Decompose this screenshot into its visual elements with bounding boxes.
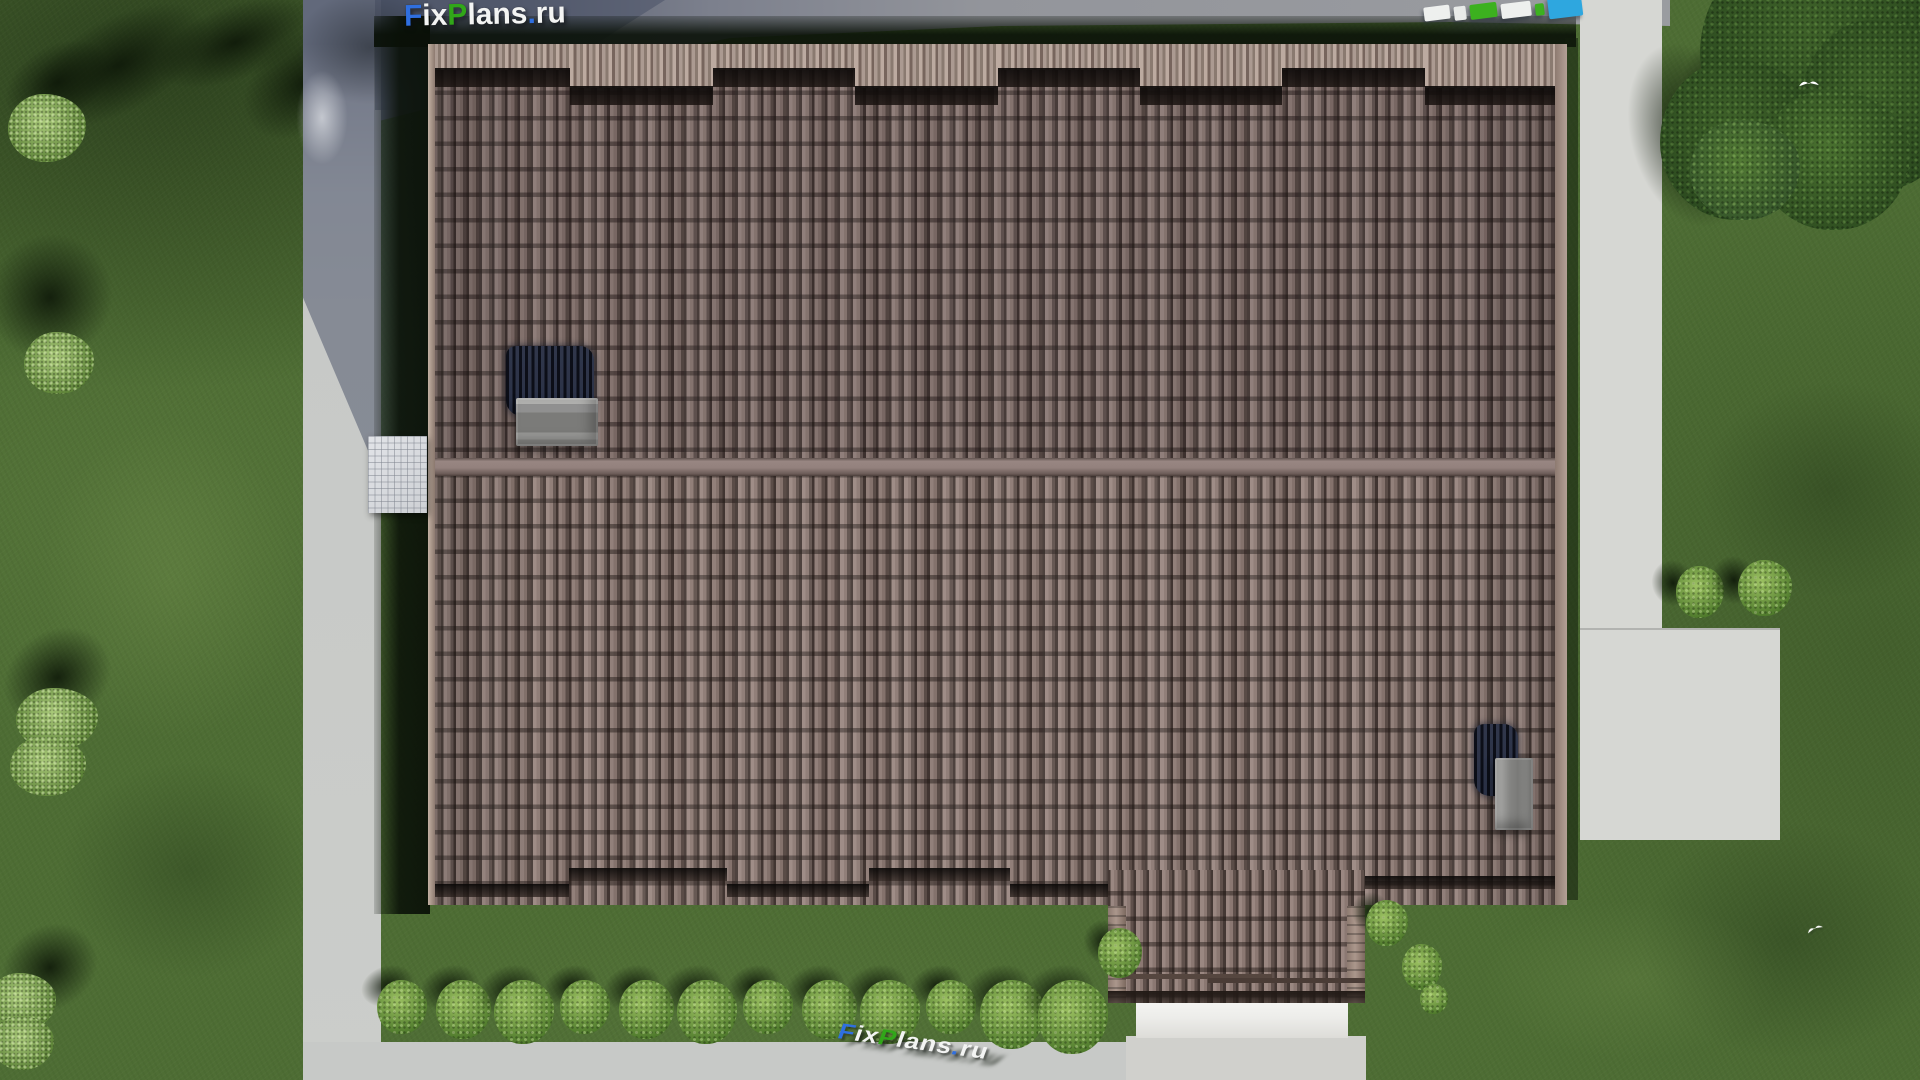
roof-fascia-right bbox=[1555, 44, 1567, 905]
roof-top-eave-steps bbox=[428, 44, 1567, 154]
roof-ridge bbox=[428, 458, 1567, 476]
roof-bottom-eave-step bbox=[1010, 884, 1108, 897]
driveway bbox=[1126, 1036, 1366, 1080]
site-watermark: FixPlans.ru bbox=[404, 0, 566, 34]
porch-roof bbox=[1108, 870, 1365, 1003]
roof-bottom-eave-step bbox=[428, 884, 569, 897]
roof-eave-step bbox=[1425, 44, 1567, 154]
watermark-letter: F bbox=[404, 0, 423, 33]
roof-eave-step bbox=[1282, 44, 1424, 154]
lawn-dark-patch bbox=[60, 760, 320, 980]
flying-bird bbox=[1798, 76, 1820, 92]
scene-aerial-render: FixPlans.ru FixPlans.ru FixPlans.ru bbox=[0, 0, 1920, 1080]
skylight bbox=[368, 436, 427, 513]
roof-bottom-eave-step bbox=[727, 884, 869, 897]
watermark-letter: ix bbox=[422, 0, 448, 32]
roof-eave-step bbox=[998, 44, 1140, 154]
watermark-letter: ru bbox=[535, 0, 566, 30]
road-light-patch bbox=[296, 70, 348, 165]
watermark-block bbox=[1423, 5, 1451, 22]
roof-eave-step bbox=[855, 44, 997, 154]
house-roof bbox=[428, 44, 1567, 1003]
roof-bottom-eave-step bbox=[869, 868, 1010, 881]
watermark-block bbox=[1469, 2, 1498, 20]
porch-bottom-eave bbox=[1108, 991, 1365, 1003]
chimney-cap-upper bbox=[516, 398, 598, 446]
roof-eave-step bbox=[570, 44, 712, 154]
watermark-letter: P bbox=[447, 0, 468, 32]
roof-eave-step bbox=[713, 44, 855, 154]
right-patio bbox=[1580, 628, 1780, 840]
roof-bottom-eave-step bbox=[569, 868, 727, 881]
watermark-block bbox=[1453, 6, 1467, 21]
watermark-block bbox=[1535, 3, 1545, 16]
porch-ridge-line bbox=[1208, 978, 1365, 983]
roof-bottom-eave-step bbox=[1365, 876, 1567, 889]
chimney-cap-lower bbox=[1495, 758, 1533, 830]
roof-eave-step bbox=[1140, 44, 1282, 154]
watermark-letter: lans bbox=[467, 0, 528, 31]
watermark-block bbox=[1500, 1, 1532, 20]
entrance-canopy bbox=[1136, 1000, 1348, 1038]
roof-fascia-left bbox=[428, 44, 435, 905]
roof-eave-step bbox=[428, 44, 570, 154]
